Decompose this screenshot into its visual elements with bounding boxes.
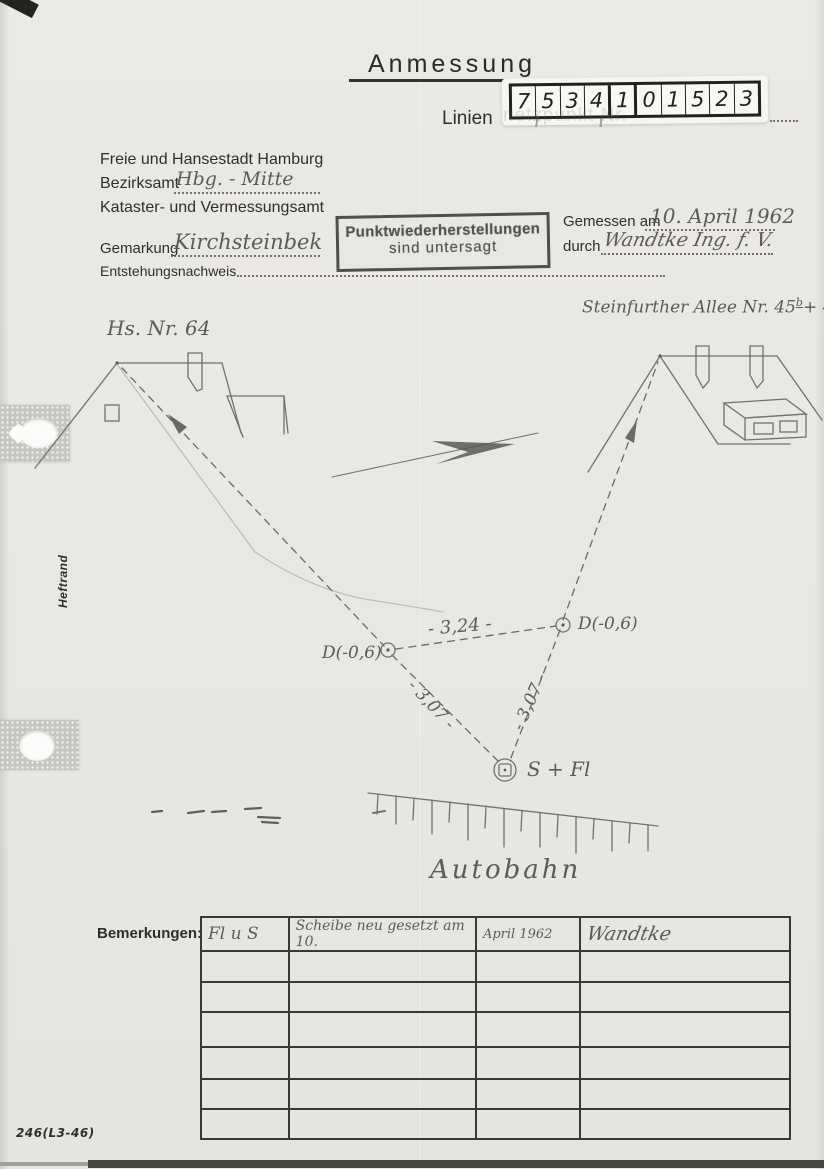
gemarkung-dotted-line — [171, 254, 320, 257]
remarks-cell — [289, 1012, 476, 1047]
remarks-cell — [201, 1047, 289, 1079]
digit-cell: 5 — [686, 84, 711, 114]
remarks-cell — [580, 1109, 790, 1139]
gemarkung-value-handwritten: Kirchsteinbek — [174, 230, 322, 254]
erasure-smudges — [152, 808, 280, 823]
remarks-cell — [580, 1079, 790, 1109]
remarks-cell: Scheibe neu gesetzt am 10. — [289, 917, 476, 951]
bottom-scan-band — [88, 1160, 824, 1168]
by-dotted-line — [601, 252, 773, 255]
remarks-cell — [289, 951, 476, 982]
right-house-drawing — [588, 346, 822, 472]
district-dotted-line — [174, 191, 320, 194]
remarks-cell — [289, 1079, 476, 1109]
marker-label: S + Fl — [527, 757, 590, 781]
remarks-cell — [580, 982, 790, 1012]
table-row — [201, 1012, 790, 1047]
remarks-cell — [580, 1047, 790, 1079]
point-S-Fl-marker — [494, 759, 516, 781]
subtitle-ghost-text: netzpunkt Nr. — [503, 105, 628, 127]
table-row — [201, 1109, 790, 1139]
page-title: Anmessung — [368, 50, 536, 79]
bottom-scan-band-light — [0, 1162, 88, 1166]
table-row: Fl u S Scheibe neu gesetzt am 10. April … — [201, 917, 790, 951]
pencil-leader-lines — [117, 364, 443, 612]
remarks-cell — [201, 1079, 289, 1109]
table-row — [201, 1047, 790, 1079]
remarks-cell — [476, 1079, 580, 1109]
remarks-label: Bemerkungen: — [97, 925, 202, 942]
remarks-cell — [289, 982, 476, 1012]
remarks-cell — [476, 1047, 580, 1079]
remarks-table: Fl u S Scheibe neu gesetzt am 10. April … — [200, 916, 791, 1140]
remarks-cell — [476, 951, 580, 982]
arrowhead-right — [625, 420, 637, 443]
table-row — [201, 1079, 790, 1109]
right-house-label-mid: + 45 — [803, 298, 824, 318]
survey-sketch — [0, 280, 824, 905]
right-house-sup-b: b — [796, 296, 803, 309]
remarks-signature: Wandtke — [584, 923, 673, 945]
gemarkung-label: Gemarkung — [100, 240, 178, 257]
subtitle-trailing-dots — [770, 119, 798, 122]
digit-cell: 3 — [734, 83, 758, 113]
district-label: Bezirksamt — [100, 175, 179, 193]
provenance-dotted-line — [237, 274, 665, 277]
remarks-cell: Wandtke — [580, 917, 790, 951]
authority-line: Freie und Hansestadt Hamburg — [100, 151, 323, 169]
remarks-cell — [289, 1109, 476, 1139]
digit-cell: 0 — [637, 85, 662, 115]
measured-value-handwritten: 10. April 1962 — [650, 204, 795, 228]
remarks-cell — [289, 1047, 476, 1079]
left-house-label: Hs. Nr. 64 — [107, 316, 210, 340]
table-row — [201, 951, 790, 982]
remarks-cell — [201, 1012, 289, 1047]
remarks-cell — [476, 1109, 580, 1139]
remarks-cell — [580, 951, 790, 982]
road-label: Autobahn — [430, 855, 581, 885]
by-label: durch — [563, 238, 601, 255]
remarks-cell — [201, 951, 289, 982]
autobahn-hatch-line — [368, 793, 658, 853]
subtitle-prefix: Linien — [442, 108, 493, 130]
table-row — [201, 982, 790, 1012]
district-value-handwritten: Hbg. - Mitte — [176, 168, 293, 190]
north-arrow — [332, 433, 538, 477]
point-left-D — [381, 643, 395, 657]
form-number: 246(L3-46) — [16, 1126, 95, 1140]
office-line: Kataster- und Vermessungsamt — [100, 199, 324, 217]
right-house-label-text: Steinfurther Allee Nr. 45 — [582, 298, 796, 318]
remarks-cell — [476, 1012, 580, 1047]
arrowhead-left — [168, 414, 187, 434]
point-right-label: D(-0,6) — [578, 614, 638, 634]
title-underline — [349, 79, 513, 82]
digit-cell: 2 — [710, 84, 735, 114]
sight-lines-dashed — [122, 362, 658, 764]
point-left-label: D(-0,6) — [322, 643, 382, 663]
digit-cell: 1 — [662, 84, 687, 114]
restoration-stamp: Punktwiederherstellungen sind untersagt — [335, 212, 550, 272]
remarks-cell — [201, 982, 289, 1012]
remarks-cell — [476, 982, 580, 1012]
remarks-cell — [201, 1109, 289, 1139]
remarks-cell: April 1962 — [476, 917, 580, 951]
provenance-label: Entstehungsnachweis — [100, 263, 236, 279]
by-value-signature: Wandtke Ing. f. V. — [602, 229, 776, 251]
right-house-label: Steinfurther Allee Nr. 45b+ 45c — [582, 296, 824, 318]
remarks-cell: Fl u S — [201, 917, 289, 951]
remarks-cell — [580, 1012, 790, 1047]
scanned-survey-document: Heftrand Anmessung Linien 7 5 3 4 1 0 1 … — [0, 0, 824, 1169]
